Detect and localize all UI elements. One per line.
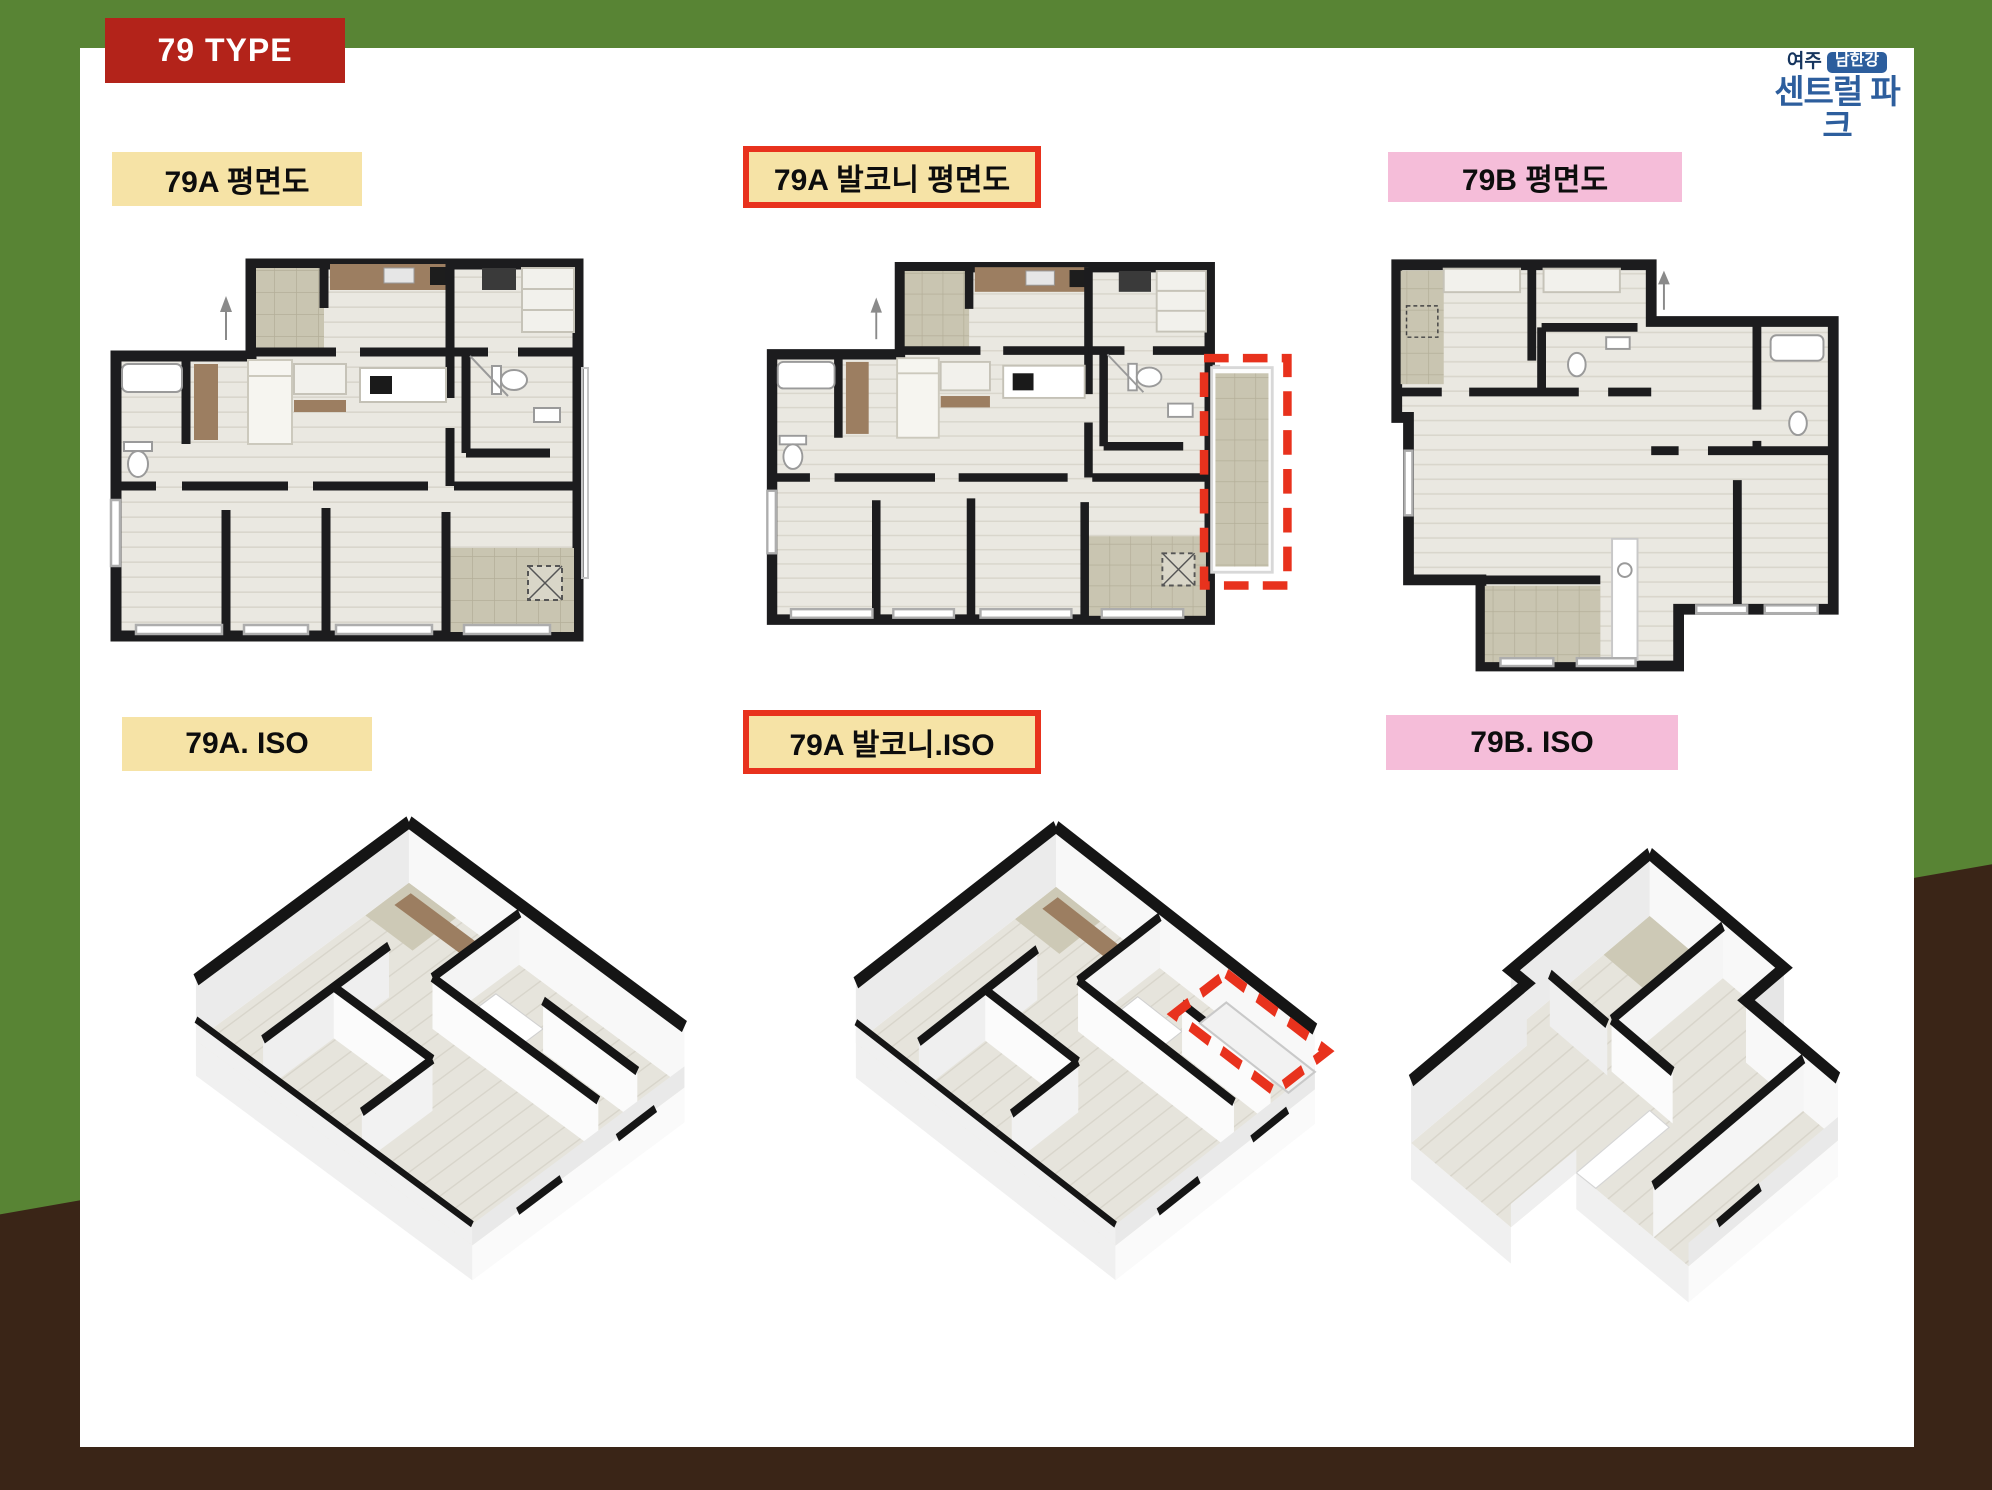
floorplan-79a-balcony-image bbox=[755, 252, 1295, 631]
iso-79a-balcony-image bbox=[792, 800, 1337, 1448]
label-79a-balcony-iso: 79A 발코니.ISO bbox=[743, 710, 1041, 774]
type-badge: 79 TYPE bbox=[105, 18, 345, 83]
iso-79a-image bbox=[128, 795, 708, 1450]
label-79a-balcony-plan: 79A 발코니 평면도 bbox=[743, 146, 1041, 208]
floorplan-79a-svg bbox=[98, 248, 598, 648]
label-79a-plan: 79A 평면도 bbox=[112, 152, 362, 206]
logo-name: 센트럴 파크 bbox=[1762, 75, 1912, 144]
logo-river-pill: 남한강 bbox=[1827, 52, 1887, 73]
brand-logo: 여주 남한강 센트럴 파크 bbox=[1762, 52, 1912, 144]
brand-logo-top-row: 여주 남한강 bbox=[1762, 52, 1912, 73]
floorplan-79b-svg bbox=[1385, 245, 1845, 676]
label-79b-plan: 79B 평면도 bbox=[1388, 152, 1682, 202]
floorplan-79b-image bbox=[1385, 245, 1845, 676]
iso-79b-image bbox=[1358, 838, 1906, 1383]
floorplan-79a-balcony-svg bbox=[755, 252, 1295, 631]
balcony-area bbox=[1212, 368, 1273, 573]
floorplan-79a-image bbox=[98, 248, 598, 648]
iso-79a-balcony-svg bbox=[792, 800, 1337, 1448]
label-79a-iso: 79A. ISO bbox=[122, 717, 372, 771]
slide: 79 TYPE 여주 남한강 센트럴 파크 79A 평면도 79A 발코니 평면… bbox=[0, 0, 1992, 1490]
logo-region: 여주 bbox=[1787, 52, 1822, 72]
iso-79b-svg bbox=[1358, 838, 1906, 1383]
label-79b-iso: 79B. ISO bbox=[1386, 715, 1678, 770]
iso-79a-svg bbox=[128, 795, 708, 1450]
